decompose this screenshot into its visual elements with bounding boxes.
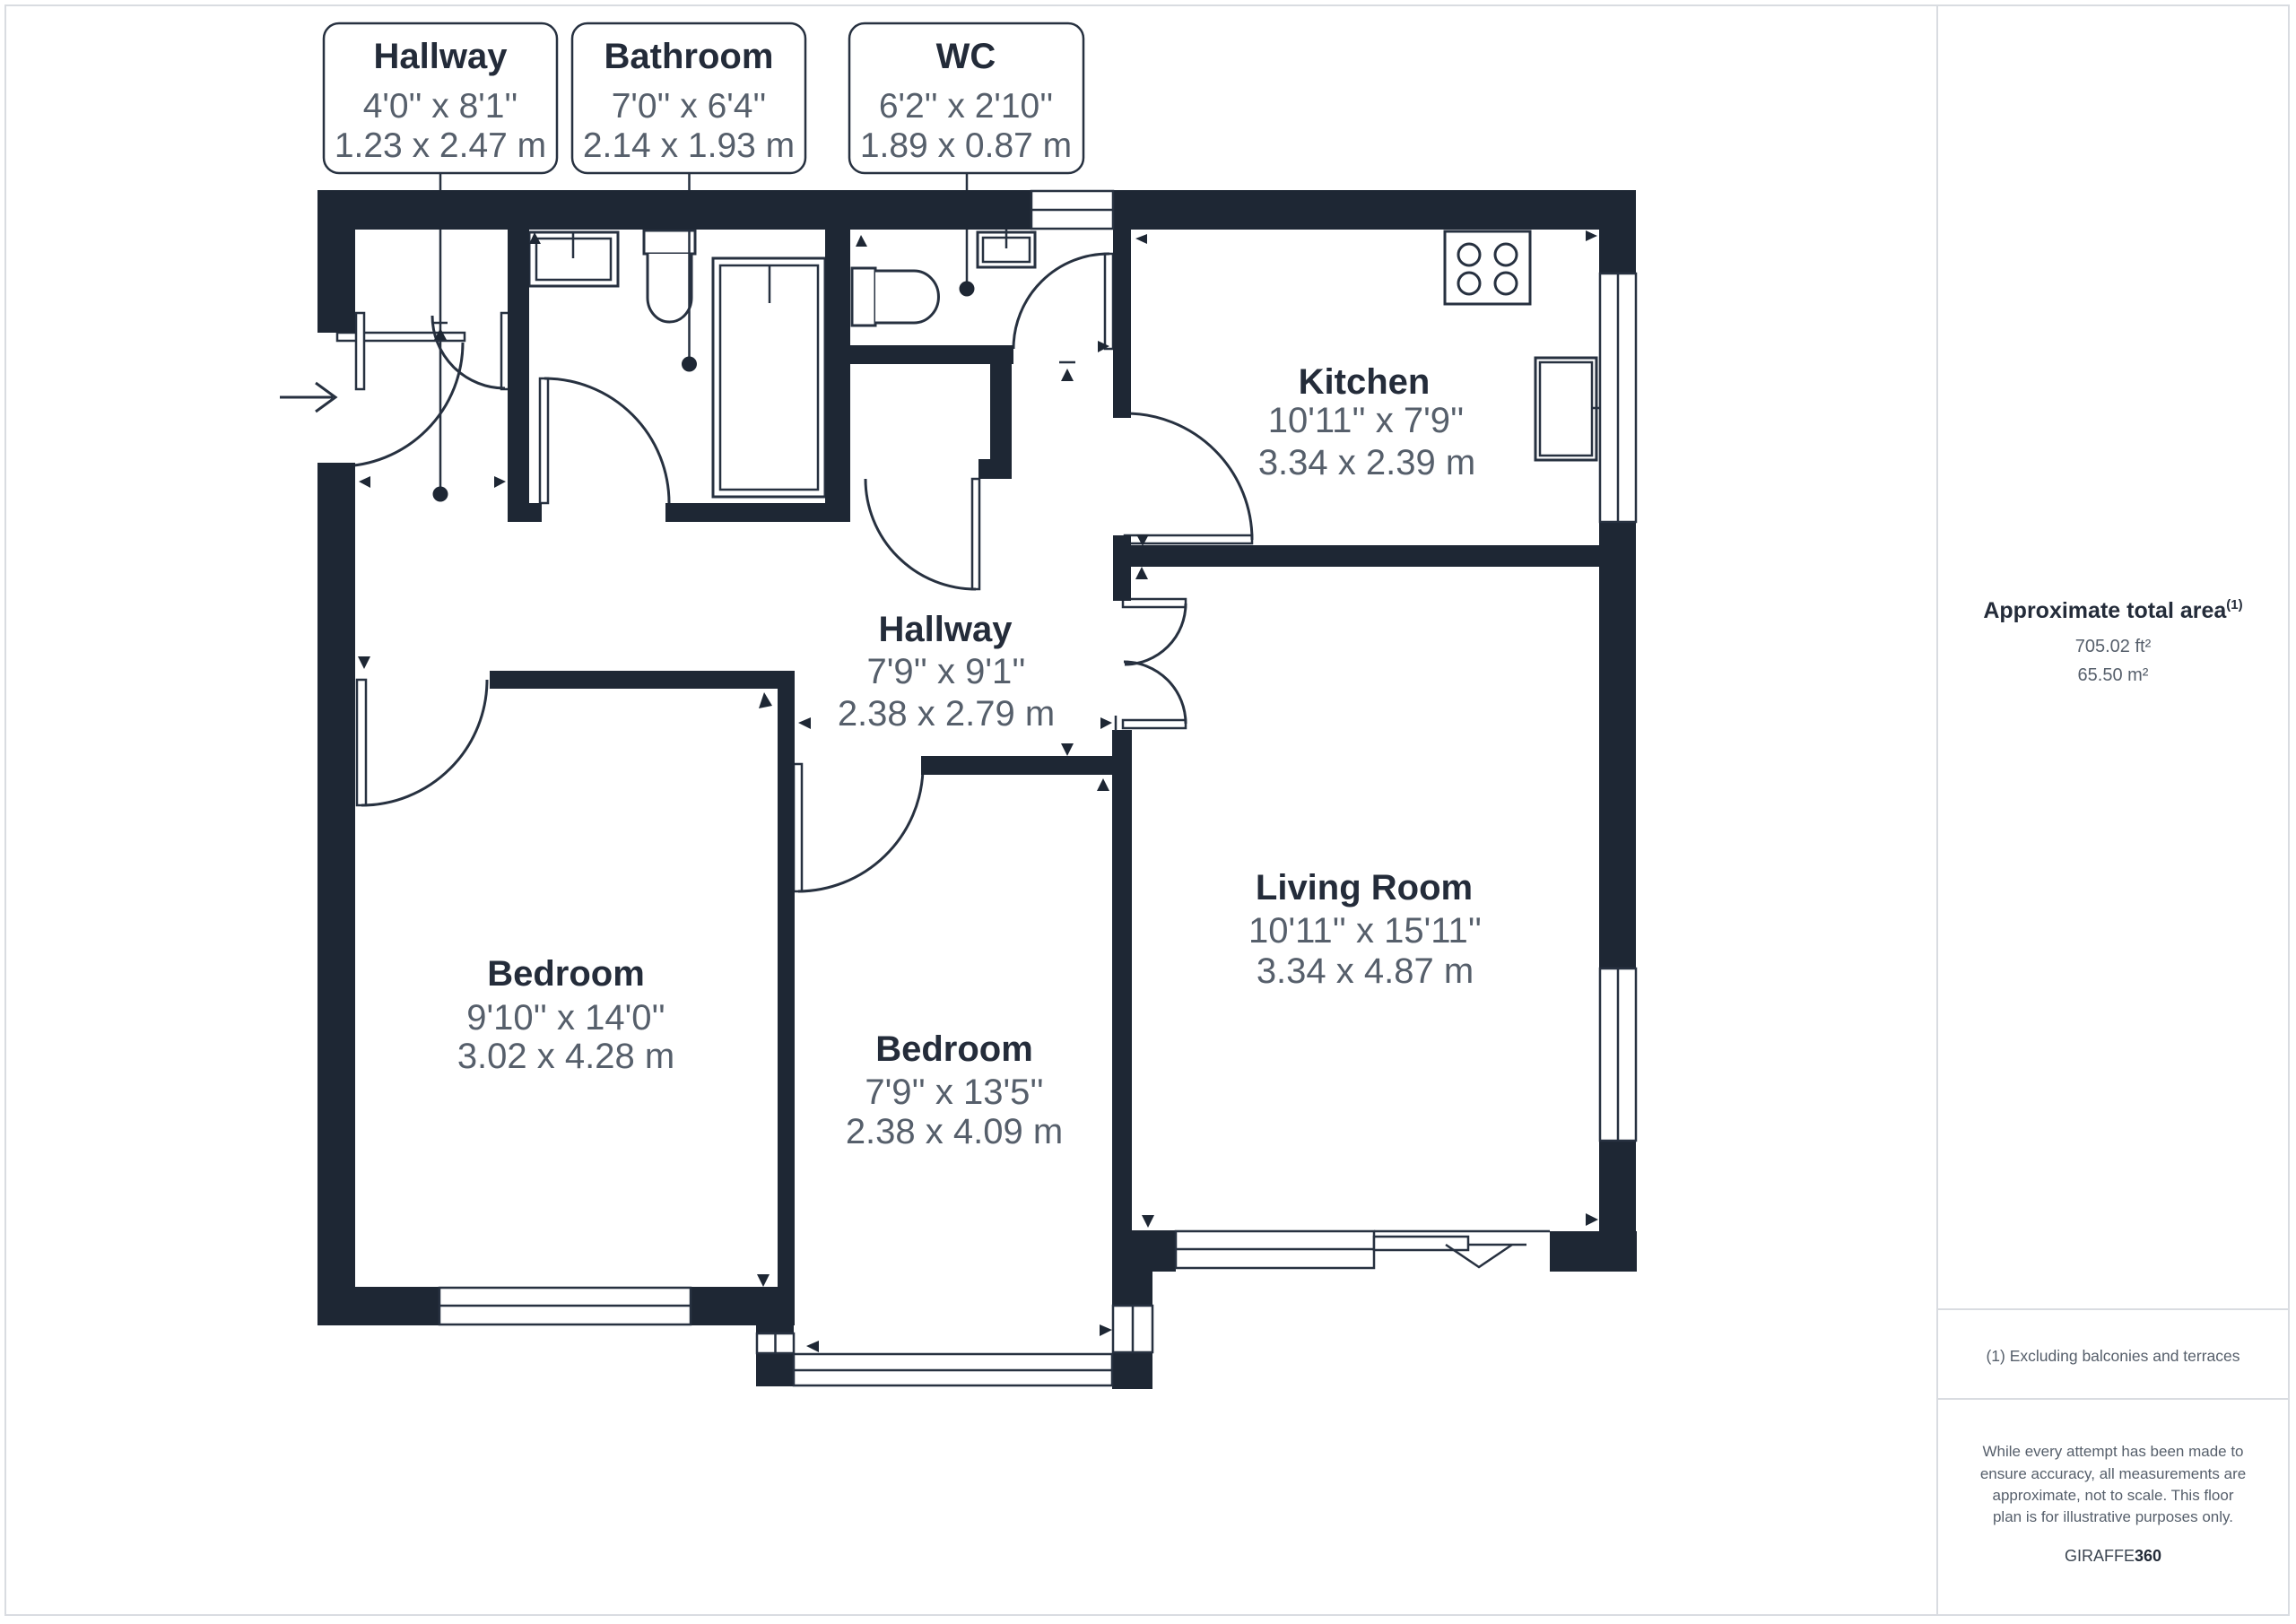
svg-text:While every attempt has been m: While every attempt has been made to	[1982, 1443, 2243, 1460]
svg-text:7'9'' x 9'1'': 7'9'' x 9'1''	[866, 652, 1025, 691]
svg-text:WC: WC	[936, 37, 996, 76]
svg-text:10'11'' x 15'11'': 10'11'' x 15'11''	[1248, 911, 1482, 951]
svg-text:3.34 x 4.87 m: 3.34 x 4.87 m	[1257, 951, 1474, 991]
svg-text:9'10'' x 14'0'': 9'10'' x 14'0''	[466, 998, 665, 1038]
svg-text:approximate, not to scale. Thi: approximate, not to scale. This floor	[1993, 1487, 2234, 1504]
svg-text:Bedroom: Bedroom	[875, 1029, 1033, 1069]
svg-text:2.14 x 1.93 m: 2.14 x 1.93 m	[583, 126, 795, 165]
svg-text:GIRAFFE360: GIRAFFE360	[2065, 1547, 2161, 1565]
svg-text:Hallway: Hallway	[374, 37, 509, 76]
svg-text:65.50 m²: 65.50 m²	[2078, 665, 2149, 685]
svg-text:3.02 x 4.28 m: 3.02 x 4.28 m	[457, 1037, 674, 1076]
svg-text:plan is for illustrative purpo: plan is for illustrative purposes only.	[1993, 1508, 2233, 1525]
svg-text:(1) Excluding balconies and te: (1) Excluding balconies and terraces	[1986, 1347, 2239, 1365]
svg-text:2.38 x 4.09 m: 2.38 x 4.09 m	[846, 1112, 1063, 1151]
svg-text:6'2'' x 2'10'': 6'2'' x 2'10''	[879, 87, 1053, 126]
svg-text:ensure accuracy, all measureme: ensure accuracy, all measurements are	[1980, 1465, 2246, 1482]
svg-text:705.02 ft²: 705.02 ft²	[2075, 637, 2152, 656]
svg-text:10'11'' x 7'9'': 10'11'' x 7'9''	[1268, 401, 1465, 440]
svg-text:2.38 x 2.79 m: 2.38 x 2.79 m	[838, 694, 1055, 734]
svg-text:3.34 x 2.39 m: 3.34 x 2.39 m	[1258, 443, 1475, 482]
svg-text:Living Room: Living Room	[1256, 868, 1473, 908]
svg-text:Bedroom: Bedroom	[487, 954, 645, 994]
svg-text:4'0'' x 8'1'': 4'0'' x 8'1''	[363, 87, 518, 126]
svg-text:Approximate total area(1): Approximate total area(1)	[1983, 597, 2242, 623]
svg-text:Bathroom: Bathroom	[604, 37, 774, 76]
svg-text:7'0'' x 6'4'': 7'0'' x 6'4''	[612, 87, 767, 126]
svg-text:Hallway: Hallway	[879, 610, 1013, 649]
svg-text:7'9'' x 13'5'': 7'9'' x 13'5''	[865, 1073, 1043, 1112]
svg-text:1.89 x 0.87 m: 1.89 x 0.87 m	[860, 126, 1072, 165]
svg-text:Kitchen: Kitchen	[1299, 362, 1431, 402]
svg-text:1.23 x 2.47 m: 1.23 x 2.47 m	[335, 126, 546, 165]
